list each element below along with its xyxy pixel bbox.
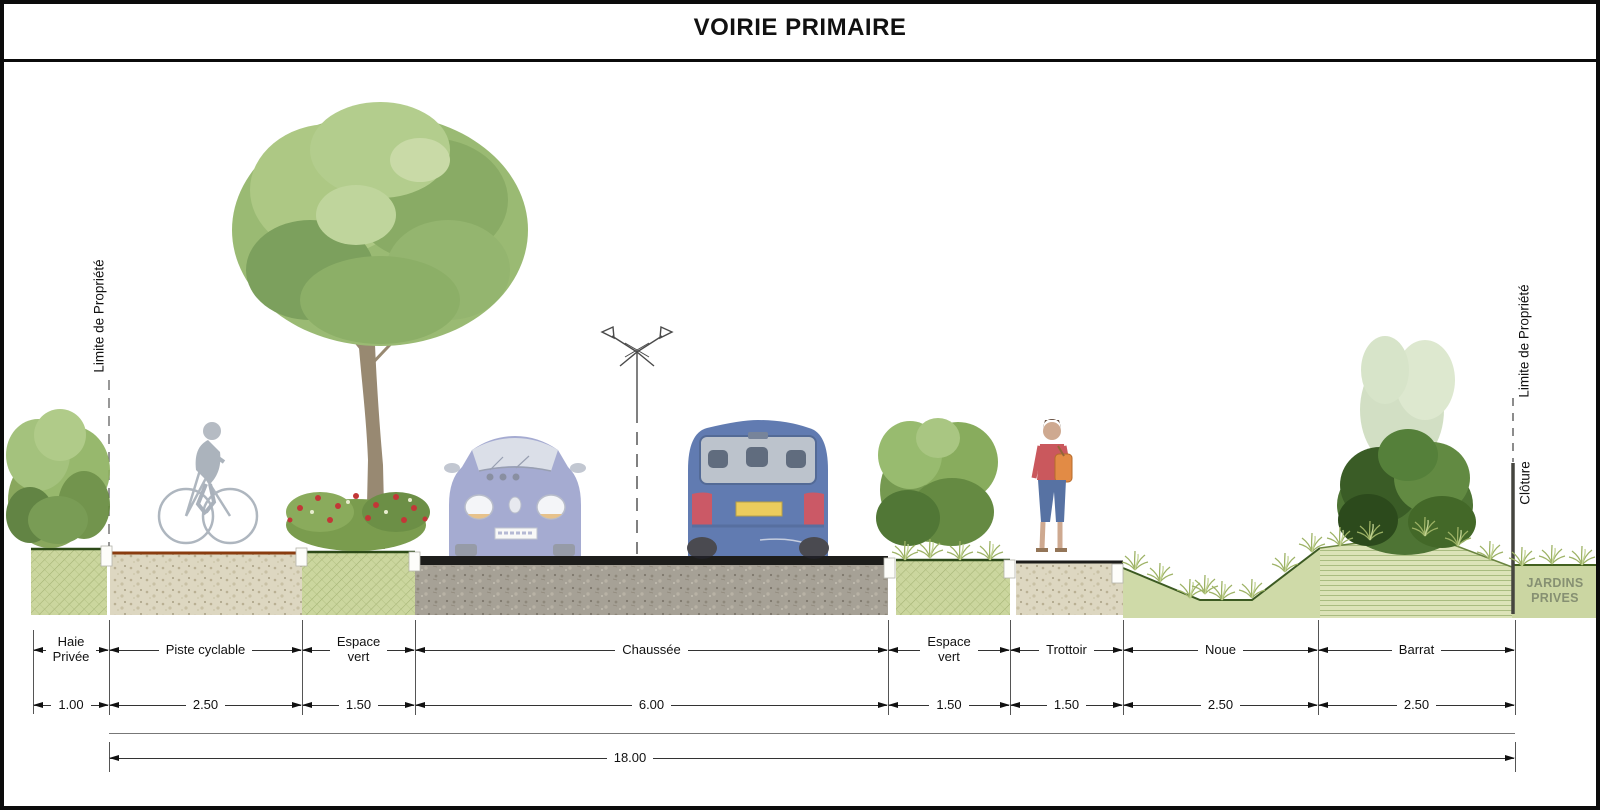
property-limit-label-left: Limite de Propriété: [92, 259, 107, 372]
dim-value-haie-privee: 1.00: [33, 697, 109, 713]
dim-label-espace-vert-2: Espace vert: [888, 632, 1010, 668]
dim-total: 18.00: [109, 750, 1515, 766]
shrub-illustration: [876, 418, 998, 546]
dim-value-piste-cyclable: 2.50: [109, 697, 302, 713]
page-title: VOIRIE PRIMAIRE: [0, 14, 1600, 42]
pedestrian-illustration: [1034, 419, 1072, 550]
drawing-sheet: VOIRIE PRIMAIRE Limite de Propriété Limi…: [0, 0, 1600, 810]
extension-line: [1515, 742, 1516, 772]
flower-bed-illustration: [286, 492, 430, 551]
dim-label-haie-privee: Haie Privée: [33, 632, 109, 668]
car-front-illustration: [444, 436, 586, 556]
berm-bush-illustration: [1337, 336, 1476, 555]
street-lamp-icon: [602, 327, 672, 554]
dim-label-noue: Noue: [1123, 632, 1318, 668]
private-hedge-illustration: [6, 409, 110, 548]
dim-value-espace-vert-1: 1.50: [302, 697, 415, 713]
dim-label-espace-vert-1: Espace vert: [302, 632, 415, 668]
dim-label-chaussee: Chaussée: [415, 632, 888, 668]
cyclist-illustration: [159, 422, 257, 543]
dim-value-espace-vert-2: 1.50: [888, 697, 1010, 713]
cross-section-drawing: [0, 0, 1600, 810]
dim-value-barrat: 2.50: [1318, 697, 1515, 713]
dim-value-chaussee: 6.00: [415, 697, 888, 713]
dim-label-barrat: Barrat: [1318, 632, 1515, 668]
dim-value-noue: 2.50: [1123, 697, 1318, 713]
private-gardens-label: JARDINS PRIVES: [1514, 567, 1596, 615]
dim-label-trottoir: Trottoir: [1010, 632, 1123, 668]
car-rear-illustration: [687, 420, 829, 559]
dim-value-trottoir: 1.50: [1010, 697, 1123, 713]
dim-label-piste-cyclable: Piste cyclable: [109, 632, 302, 668]
dimension-boundary-line: [109, 733, 1515, 734]
extension-line: [1515, 620, 1516, 715]
title-separator: [0, 59, 1600, 62]
fence-label: Clôture: [1518, 461, 1533, 505]
property-limit-label-right: Limite de Propriété: [1517, 284, 1532, 397]
